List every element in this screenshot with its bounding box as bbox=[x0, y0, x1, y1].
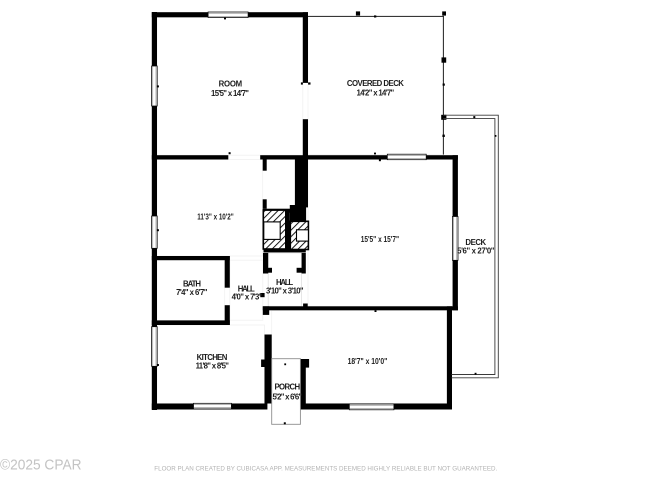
svg-text:15'5" x 15'7": 15'5" x 15'7" bbox=[361, 235, 400, 244]
svg-text:5'2" x 6'6": 5'2" x 6'6" bbox=[272, 393, 302, 402]
svg-text:5'6" x 27'0": 5'6" x 27'0" bbox=[457, 247, 495, 256]
svg-text:11'3" x 10'2": 11'3" x 10'2" bbox=[197, 213, 234, 222]
svg-text:15'5" x 14'7": 15'5" x 14'7" bbox=[211, 89, 249, 98]
svg-text:ROOM: ROOM bbox=[219, 80, 243, 89]
svg-text:PORCH: PORCH bbox=[275, 382, 301, 391]
svg-text:14'2" x 14'7": 14'2" x 14'7" bbox=[357, 88, 395, 97]
svg-text:18'7" x 10'0": 18'7" x 10'0" bbox=[348, 357, 388, 366]
svg-text:3'10" x 3'10": 3'10" x 3'10" bbox=[266, 287, 304, 296]
svg-text:©2025 CPAR: ©2025 CPAR bbox=[0, 458, 82, 474]
svg-text:11'8" x 8'5": 11'8" x 8'5" bbox=[196, 362, 230, 371]
svg-text:FLOOR PLAN CREATED BY CUBICASA: FLOOR PLAN CREATED BY CUBICASA APP. MEAS… bbox=[154, 467, 497, 473]
svg-text:COVERED DECK: COVERED DECK bbox=[347, 79, 404, 88]
svg-text:HALL: HALL bbox=[276, 278, 293, 287]
svg-text:7'4" x 6'7": 7'4" x 6'7" bbox=[176, 288, 208, 297]
svg-text:4'0" x 7'3": 4'0" x 7'3" bbox=[232, 293, 263, 302]
svg-text:BATH: BATH bbox=[183, 279, 201, 288]
